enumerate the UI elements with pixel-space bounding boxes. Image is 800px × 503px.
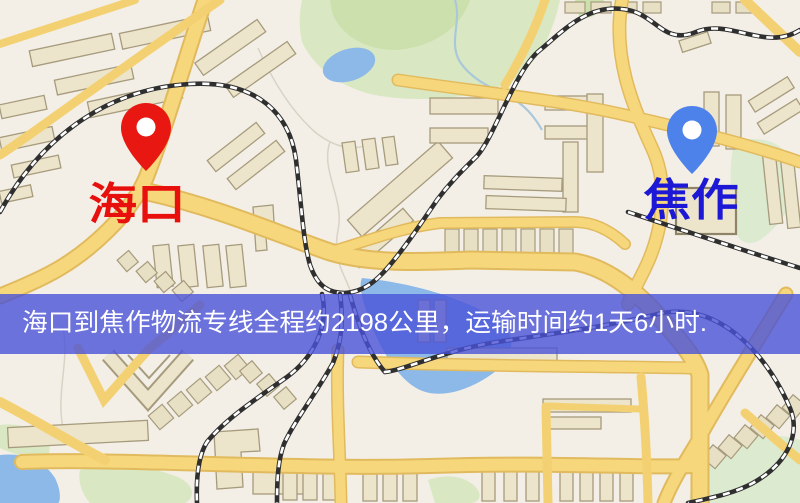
map-canvas: 海口到焦作物流专线全程约2198公里，运输时间约1天6小时. 海口 焦作 xyxy=(0,0,800,503)
origin-label: 海口 xyxy=(89,180,186,229)
route-banner-text: 海口到焦作物流专线全程约2198公里，运输时间约1天6小时. xyxy=(22,309,707,337)
destination-pin-hole xyxy=(683,121,702,140)
destination-label: 焦作 xyxy=(644,176,739,225)
logistics-route-map: 海口到焦作物流专线全程约2198公里，运输时间约1天6小时. 海口 焦作 xyxy=(0,0,800,503)
route-banner: 海口到焦作物流专线全程约2198公里，运输时间约1天6小时. xyxy=(0,294,800,354)
origin-pin-hole xyxy=(137,118,156,137)
